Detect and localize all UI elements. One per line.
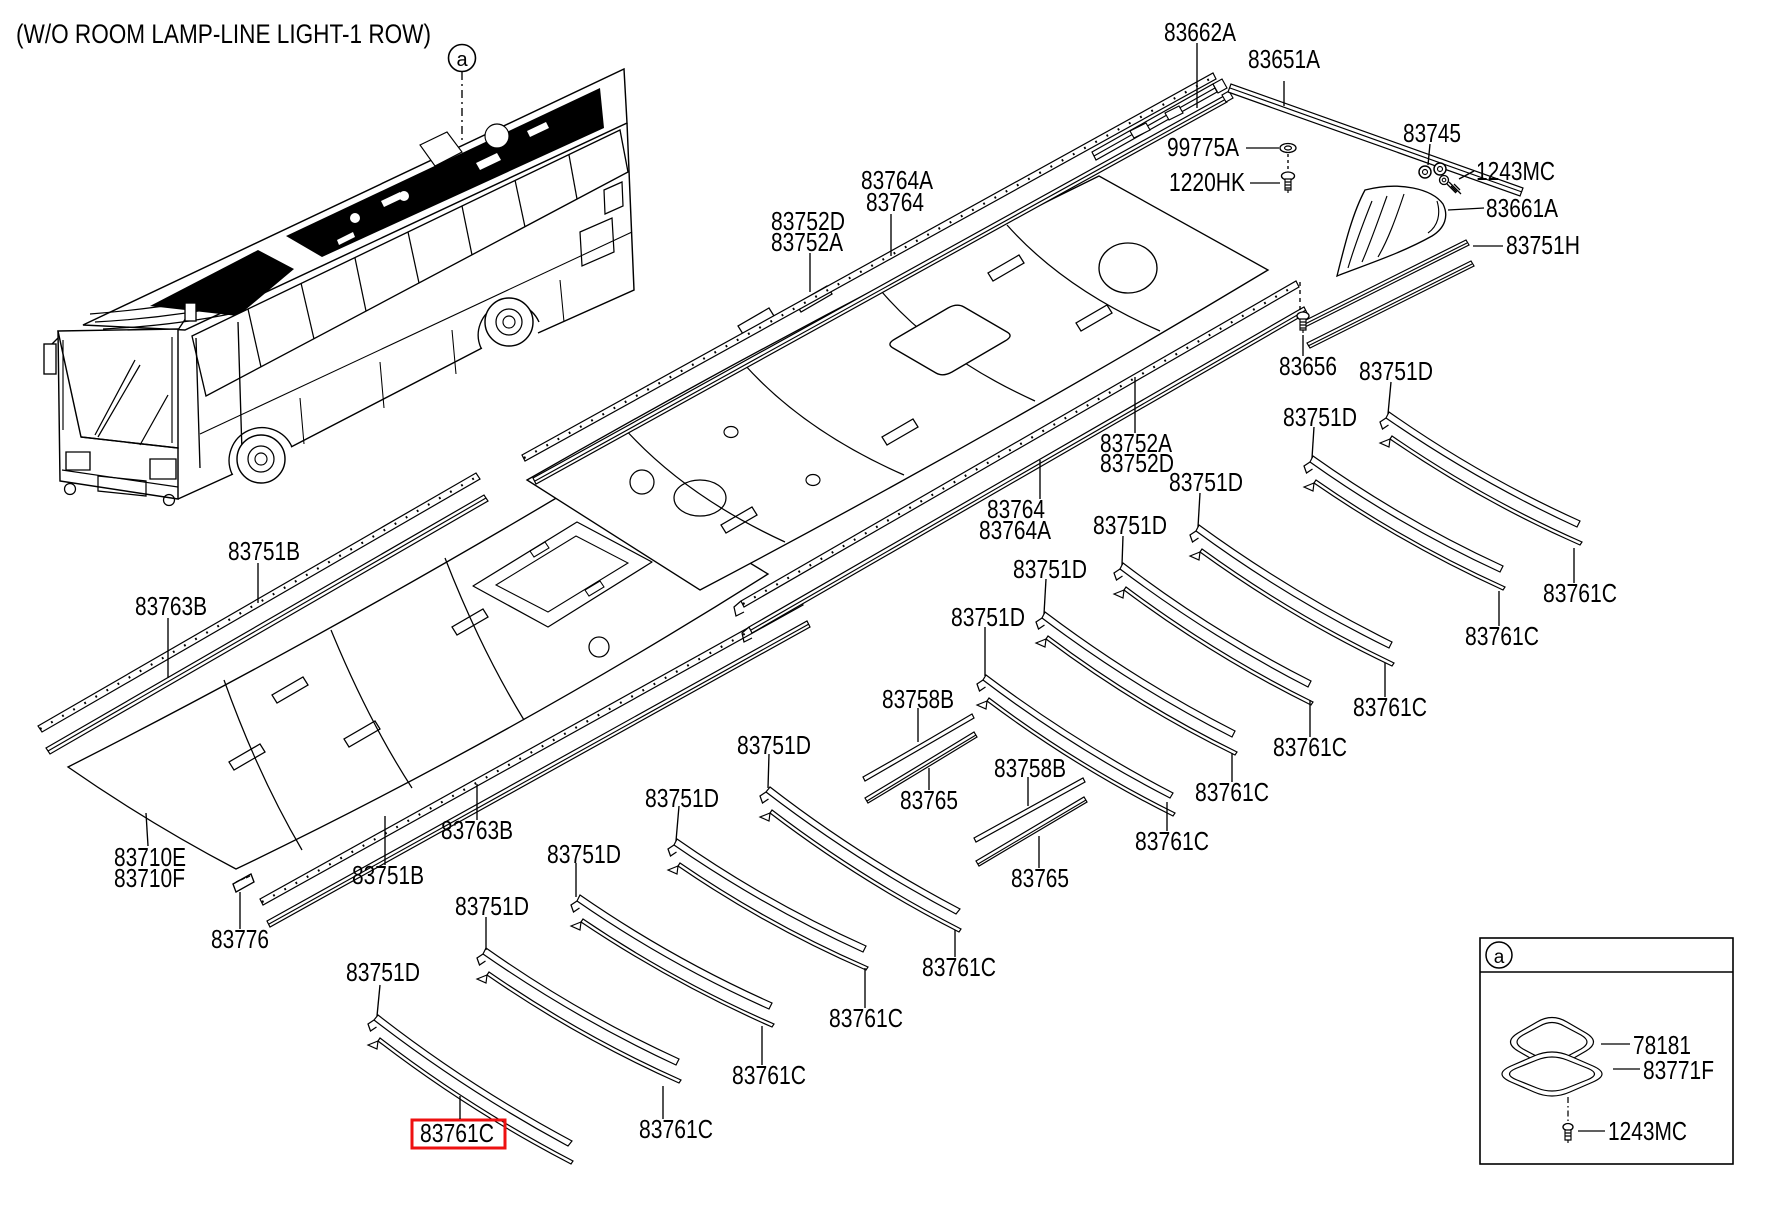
svg-text:83761C: 83761C: [639, 1116, 713, 1144]
svg-text:83771F: 83771F: [1643, 1057, 1714, 1085]
svg-text:83751H: 83751H: [1506, 232, 1580, 260]
svg-text:83751D: 83751D: [1093, 512, 1167, 540]
svg-text:83765: 83765: [1011, 865, 1069, 893]
svg-text:83710F: 83710F: [114, 865, 185, 893]
svg-text:83752A: 83752A: [771, 229, 843, 257]
svg-text:83761C: 83761C: [829, 1005, 903, 1033]
svg-text:83751D: 83751D: [1169, 469, 1243, 497]
svg-text:83751D: 83751D: [547, 841, 621, 869]
svg-text:99775A: 99775A: [1167, 134, 1239, 162]
svg-text:83761C: 83761C: [1195, 779, 1269, 807]
svg-text:83761C: 83761C: [1135, 828, 1209, 856]
svg-text:1243MC: 1243MC: [1608, 1118, 1687, 1146]
svg-text:1243MC: 1243MC: [1476, 158, 1555, 186]
svg-text:83751D: 83751D: [737, 732, 811, 760]
svg-text:83765: 83765: [900, 787, 958, 815]
svg-text:83761C: 83761C: [420, 1120, 494, 1148]
svg-text:83656: 83656: [1279, 353, 1337, 381]
svg-text:a: a: [1494, 947, 1505, 968]
svg-text:83651A: 83651A: [1248, 46, 1320, 74]
svg-text:83764: 83764: [866, 189, 924, 217]
svg-text:83761C: 83761C: [732, 1062, 806, 1090]
svg-text:83751B: 83751B: [228, 538, 300, 566]
svg-text:1220HK: 1220HK: [1169, 169, 1245, 197]
svg-text:83763B: 83763B: [441, 817, 513, 845]
svg-text:83764A: 83764A: [979, 517, 1051, 545]
svg-text:78181: 78181: [1633, 1032, 1691, 1060]
svg-text:83745: 83745: [1403, 120, 1461, 148]
svg-text:83662A: 83662A: [1164, 19, 1236, 47]
svg-text:83751B: 83751B: [352, 862, 424, 890]
svg-text:83751D: 83751D: [346, 959, 420, 987]
svg-text:83761C: 83761C: [1353, 694, 1427, 722]
svg-text:83751D: 83751D: [455, 893, 529, 921]
svg-text:83751D: 83751D: [1283, 404, 1357, 432]
svg-text:83752D: 83752D: [1100, 450, 1174, 478]
svg-text:83761C: 83761C: [1465, 623, 1539, 651]
svg-text:83763B: 83763B: [135, 593, 207, 621]
svg-text:(W/O ROOM LAMP-LINE LIGHT-1 RO: (W/O ROOM LAMP-LINE LIGHT-1 ROW): [16, 19, 431, 49]
svg-text:83761C: 83761C: [922, 954, 996, 982]
svg-text:83751D: 83751D: [1013, 556, 1087, 584]
svg-text:83761C: 83761C: [1273, 734, 1347, 762]
svg-text:83661A: 83661A: [1486, 195, 1558, 223]
svg-text:83761C: 83761C: [1543, 580, 1617, 608]
svg-text:83776: 83776: [211, 926, 269, 954]
svg-text:83758B: 83758B: [994, 755, 1066, 783]
svg-text:83751D: 83751D: [951, 604, 1025, 632]
svg-text:a: a: [456, 49, 468, 71]
svg-text:83751D: 83751D: [1359, 358, 1433, 386]
svg-text:83751D: 83751D: [645, 785, 719, 813]
